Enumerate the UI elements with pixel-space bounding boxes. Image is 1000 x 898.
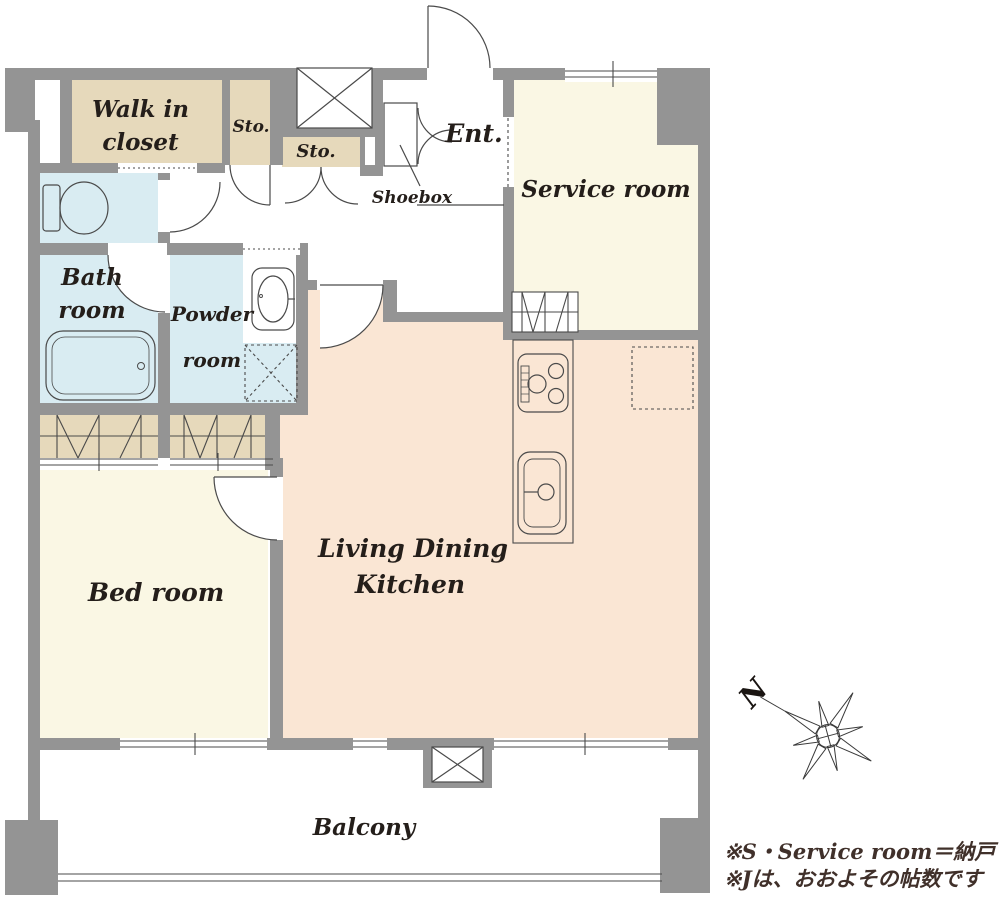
- storage-lower-label: Sto.: [288, 139, 344, 165]
- ldk-area: [308, 288, 383, 738]
- ldk-area2: [383, 322, 504, 738]
- balcony-pillar-right: [660, 818, 710, 893]
- ldk-line1: Living Dining: [318, 531, 502, 567]
- powder-room-label: Powder room: [164, 291, 260, 383]
- toilet-door: [170, 182, 220, 232]
- shoebox-icon: [384, 103, 420, 186]
- closet-right-hatch: [170, 415, 265, 458]
- storage-lower-doors: [285, 167, 358, 204]
- bath-room-label: Bath room: [46, 262, 138, 327]
- walk-in-closet-line1: Walk in: [78, 93, 203, 126]
- shoebox-label: Shoebox: [366, 186, 458, 211]
- service-room-closet: [512, 292, 578, 332]
- balcony-hatch-icon: [432, 747, 483, 782]
- bed-room-label: Bed room: [88, 575, 224, 611]
- ldk-label: Living Dining Kitchen: [318, 531, 502, 604]
- powder-room-line2: room: [164, 337, 260, 383]
- bath-room-line2: room: [46, 295, 138, 328]
- service-room-area: [514, 80, 657, 145]
- entrance-label: Ent.: [442, 116, 506, 152]
- ldk-area3: [504, 340, 698, 738]
- storage-upper-label: Sto.: [228, 115, 274, 140]
- bath-room-line1: Bath: [46, 262, 138, 295]
- powder-room-line1: Powder: [164, 291, 260, 337]
- service-room-label: Service room: [518, 173, 694, 206]
- compass-rose-icon: [735, 653, 898, 806]
- note-service-room: ※S・Service room＝納戸: [724, 836, 995, 866]
- service-room-notch-wall: [657, 68, 710, 145]
- shaft-x-icon: [297, 68, 372, 128]
- walk-in-closet-label: Walk in closet: [78, 93, 203, 160]
- entrance-door: [428, 6, 490, 68]
- floor-plan: Walk in closet Sto. Sto. Ent. Shoebox Se…: [0, 0, 1000, 898]
- balcony-label: Balcony: [302, 811, 426, 844]
- balcony-pillar-left: [5, 820, 58, 895]
- toilet-area: [40, 173, 158, 243]
- walk-in-closet-line2: closet: [78, 126, 203, 159]
- storage-upper-door: [230, 165, 270, 205]
- ldk-line2: Kitchen: [318, 567, 502, 603]
- note-jo-count: ※Jは、おおよその帖数です: [724, 863, 983, 893]
- ldk-area4: [280, 415, 308, 738]
